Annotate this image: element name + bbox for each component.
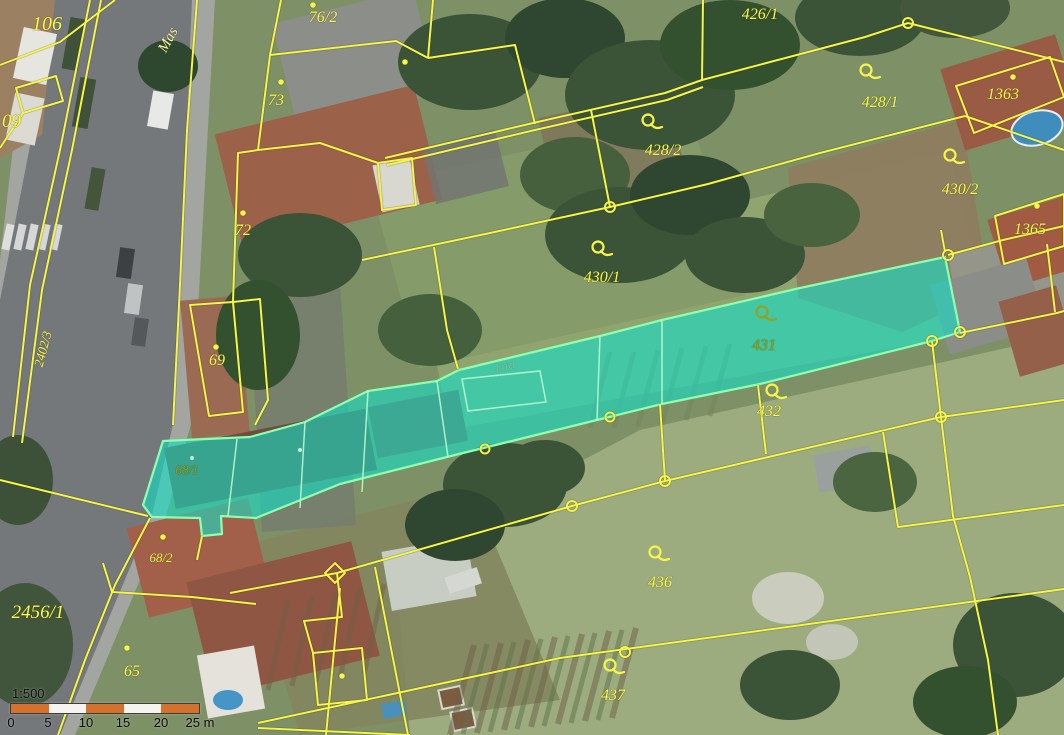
parcel-label-428-1: 428/1	[862, 94, 898, 111]
scale-tick: 20	[154, 715, 168, 730]
parcel-label-106: 106	[32, 13, 62, 35]
parcel-label-72: 72	[235, 222, 251, 239]
scale-ticks: 0 5 10 15 20 25 m	[0, 715, 240, 733]
scale-bar: 1:500 0 5 10 15 20 25 m	[0, 686, 240, 735]
parcel-label-426-1: 426/1	[742, 6, 778, 23]
parcel-label-430-1: 430/1	[584, 269, 620, 286]
parcel-label-2456-1: 2456/1	[12, 602, 65, 623]
parcel-label-428-2: 428/2	[645, 142, 681, 159]
scale-tick: 25 m	[186, 715, 215, 730]
parcel-label-65: 65	[124, 663, 140, 680]
parcel-label-73: 73	[268, 92, 284, 109]
parcel-label-09: 09	[2, 111, 22, 132]
parcel-label-68-1: 68/1	[175, 462, 198, 477]
scale-tick: 10	[79, 715, 93, 730]
parcel-label-1363: 1363	[987, 86, 1019, 103]
parcel-label-432: 432	[757, 403, 781, 420]
parcel-label-68-2: 68/2	[149, 550, 173, 565]
parcel-label-437: 437	[601, 687, 626, 704]
scale-tick: 15	[116, 715, 130, 730]
scale-tick: 0	[7, 715, 14, 730]
parcel-label-76-2: 76/2	[309, 9, 337, 26]
parcel-label-69: 69	[209, 352, 225, 369]
scale-tick: 5	[44, 715, 51, 730]
parcel-label-436: 436	[648, 574, 672, 591]
parcel-label-1365: 1365	[1014, 221, 1046, 238]
scale-bar-graphic	[10, 703, 200, 714]
parcel-label-431: 431	[752, 337, 776, 354]
parcel-label-430-2: 430/2	[942, 181, 978, 198]
scale-ratio: 1:500	[12, 686, 45, 701]
map-viewport[interactable]: 106 09 Mas 76/2 73 72 69 2402/3 426/1 42…	[0, 0, 1064, 735]
